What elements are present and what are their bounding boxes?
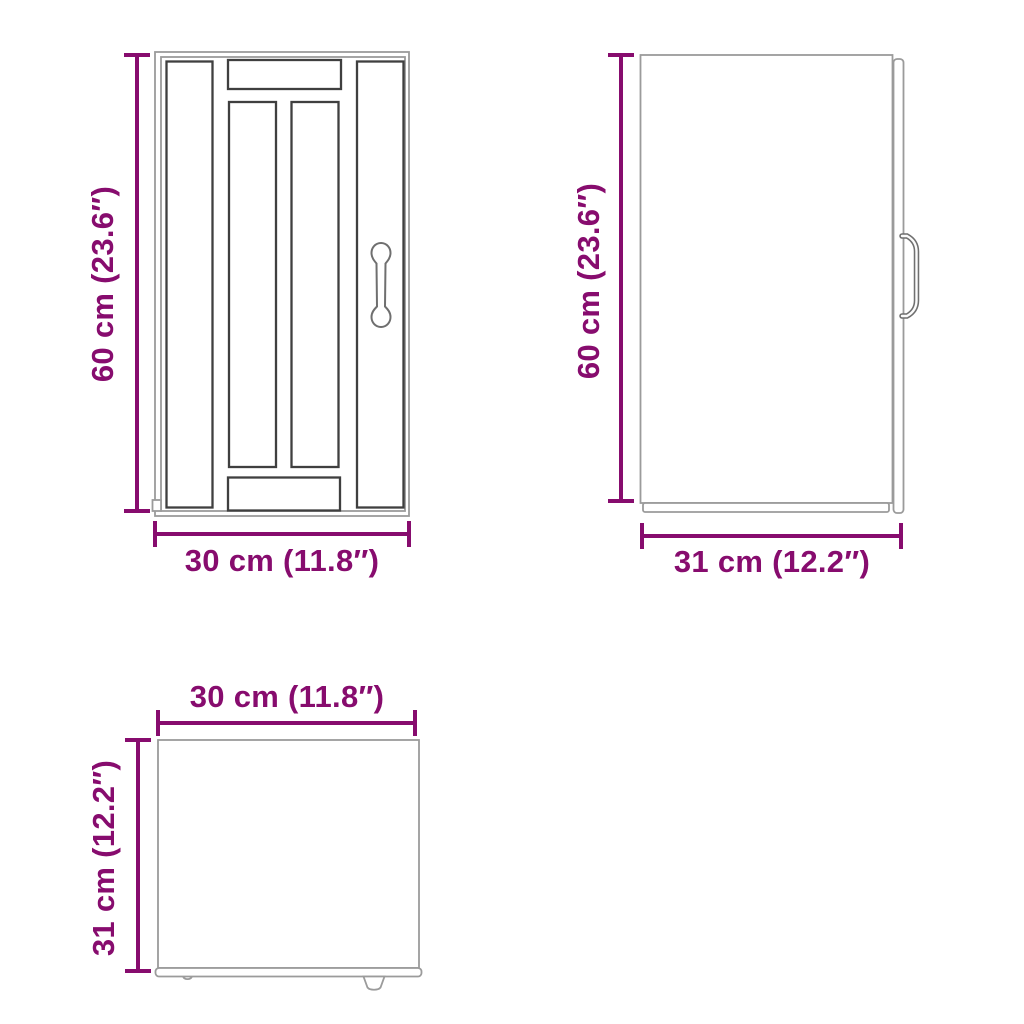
top-body-outline — [158, 740, 419, 968]
door-left-stile-panel — [167, 62, 213, 508]
top-view-drawing — [156, 740, 422, 990]
door-center-right-panel — [292, 102, 339, 467]
side-door-edge — [894, 59, 904, 513]
hinge-detail — [153, 500, 162, 511]
front-view-drawing — [153, 52, 410, 516]
top-door-front-edge — [156, 968, 422, 977]
door-center-left-panel — [229, 102, 276, 467]
door-handle-top-icon — [364, 977, 385, 990]
cabinet-drawings — [0, 0, 1024, 1024]
door-top-rail-panel — [228, 60, 341, 89]
door-bottom-rail-panel — [228, 478, 340, 511]
side-body-outline — [641, 55, 893, 503]
side-view-drawing — [641, 55, 917, 513]
side-bottom-panel-edge — [643, 503, 889, 512]
product-dimension-diagram: 60 cm (23.6″) 30 cm (11.8″) 60 cm (23.6″… — [0, 0, 1024, 1024]
